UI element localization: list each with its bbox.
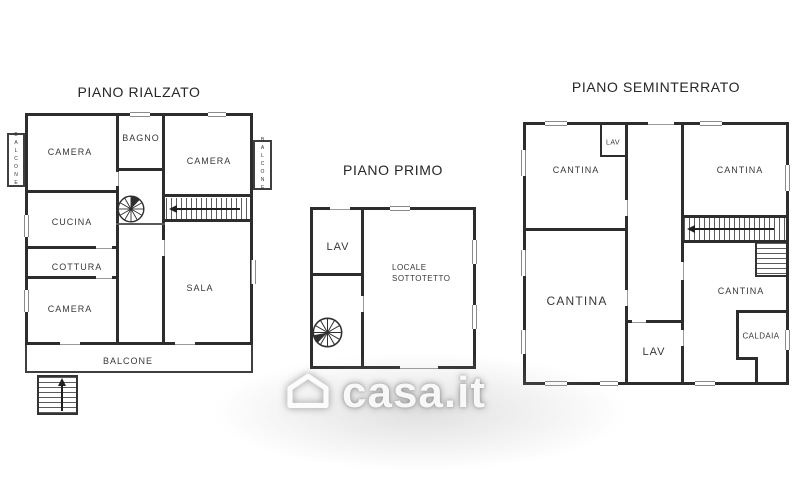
interior-wall	[116, 116, 119, 342]
plan-title: PIANO RIALZATO	[25, 84, 253, 100]
door-opening	[116, 172, 119, 186]
door-opening	[60, 342, 80, 345]
house-icon	[282, 372, 334, 408]
door-opening	[96, 246, 112, 249]
interior-wall	[736, 310, 739, 360]
watermark-logo-text: casa.it	[342, 368, 486, 418]
door-opening	[162, 240, 165, 256]
arrow-left-icon	[687, 225, 695, 233]
interior-wall	[162, 194, 250, 197]
interior-wall	[755, 357, 758, 385]
window	[521, 150, 526, 176]
room-label: CAMERA	[48, 147, 93, 157]
interior-wall	[162, 219, 250, 222]
door-opening	[681, 330, 684, 346]
room-label: LAV	[643, 346, 666, 358]
door-opening	[681, 262, 684, 280]
window	[521, 330, 526, 354]
balcony-left: BALCONE	[7, 133, 25, 187]
room-label: CANTINA	[553, 165, 600, 175]
interior-wall	[736, 310, 786, 313]
door-opening	[632, 320, 646, 323]
window	[700, 121, 722, 126]
window	[208, 112, 226, 117]
room-label: CUCINA	[52, 217, 93, 227]
interior-wall	[313, 273, 361, 276]
room-label: BALCONE	[13, 132, 19, 188]
window	[785, 330, 790, 350]
door-opening	[625, 290, 628, 306]
window	[521, 250, 526, 276]
door-opening	[361, 296, 364, 312]
interior-wall	[625, 125, 628, 382]
interior-wall	[361, 210, 364, 366]
room-label: CALDAIA	[742, 332, 779, 341]
window	[785, 165, 790, 191]
plan-title: PIANO SEMINTERRATO	[523, 79, 789, 95]
door-opening	[330, 207, 350, 210]
window	[390, 206, 410, 211]
staircase	[755, 243, 786, 277]
arrow-left-icon	[169, 205, 177, 213]
stair-direction-line	[61, 383, 63, 411]
spiral-staircase-icon	[117, 195, 145, 223]
floorplan-document: PIANO RIALZATO	[0, 0, 800, 500]
room-label: LAV	[606, 140, 620, 147]
window	[695, 381, 715, 386]
spiral-staircase-icon	[312, 317, 343, 348]
door-opening	[175, 342, 195, 345]
room-label: CAMERA	[48, 304, 93, 314]
window	[251, 260, 256, 284]
room-label: CANTINA	[718, 286, 765, 296]
room-label: CANTINA	[546, 294, 607, 308]
room-label: CANTINA	[717, 165, 764, 175]
room-label: COTTURA	[52, 262, 103, 272]
door-opening	[648, 122, 674, 125]
window	[472, 240, 477, 264]
window	[24, 215, 29, 237]
room-label: BALCONE	[260, 137, 266, 193]
door-opening	[96, 276, 112, 279]
room-label: LOCALE SOTTOTETTO	[392, 262, 448, 284]
interior-wall	[162, 116, 165, 342]
door-opening	[625, 200, 628, 216]
room-label: LAV	[327, 241, 350, 253]
stair-direction-line	[176, 208, 240, 210]
window	[130, 112, 150, 117]
interior-wall	[116, 223, 165, 225]
room-label: SALA	[186, 283, 213, 293]
interior-wall	[28, 190, 116, 193]
arrow-up-icon	[58, 378, 66, 386]
window	[545, 121, 567, 126]
room-label: BALCONE	[103, 356, 153, 366]
room-label: CAMERA	[187, 156, 232, 166]
window	[24, 290, 29, 312]
interior-wall	[116, 168, 165, 171]
plan-title: PIANO PRIMO	[310, 162, 476, 178]
stair-direction-line	[694, 228, 774, 230]
room-label: BAGNO	[122, 133, 160, 143]
window	[472, 305, 477, 329]
balcony-right: BALCONE	[253, 140, 272, 190]
interior-wall	[526, 228, 625, 231]
